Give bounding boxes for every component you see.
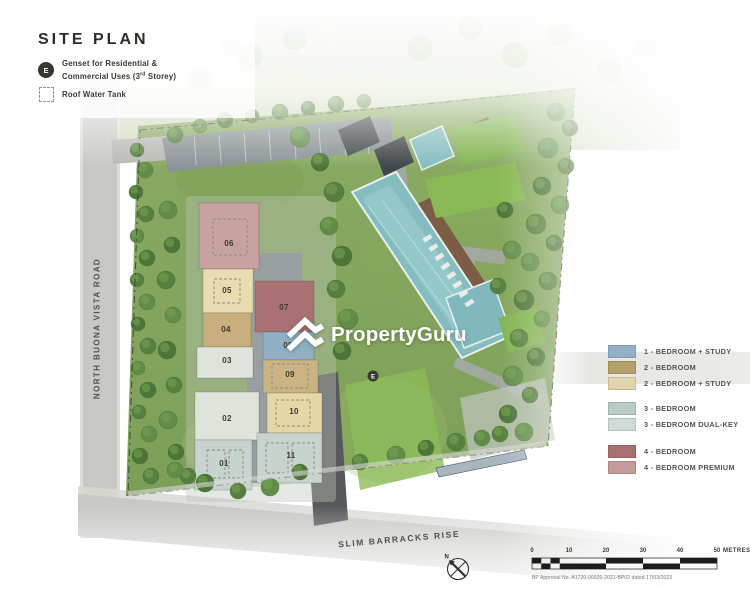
tree-highlight xyxy=(134,449,143,458)
genset-marker: E xyxy=(368,371,379,382)
north-arrow-compass: N xyxy=(441,551,473,583)
tree-highlight xyxy=(232,484,241,493)
genset-legend-symbol: E xyxy=(38,62,54,78)
swatch-3br xyxy=(608,402,636,415)
block-04-number: 04 xyxy=(221,325,231,334)
tree-highlight xyxy=(492,279,501,288)
page-title: SITE PLAN xyxy=(38,31,149,49)
tree-highlight xyxy=(132,362,140,370)
tree-highlight xyxy=(354,455,363,464)
scale-bar-graphic xyxy=(524,557,750,571)
legend-row: 2 - BEDROOM + STUDY xyxy=(608,378,748,389)
watermark-text: PropertyGuru xyxy=(331,323,467,347)
tree-highlight xyxy=(389,448,399,458)
scale-tick: 30 xyxy=(640,548,647,554)
tree-highlight xyxy=(141,295,150,304)
tree-highlight xyxy=(130,186,138,194)
tree-highlight xyxy=(263,480,273,490)
unit-type-legend: 1 - BEDROOM + STUDY 2 - BEDROOM 2 - BEDR… xyxy=(608,346,748,478)
swatch-3br-dualkey xyxy=(608,418,636,431)
tree-highlight xyxy=(142,339,151,348)
tree-highlight xyxy=(140,207,149,216)
scale-tick: 0 xyxy=(530,548,533,554)
tree-highlight xyxy=(322,219,332,229)
block-09-number: 09 xyxy=(285,370,295,379)
legend-row: 4 - BEDROOM PREMIUM xyxy=(608,462,748,473)
tree-highlight xyxy=(476,431,485,440)
block-11-number: 11 xyxy=(286,451,295,460)
scale-unit: METRES xyxy=(723,548,750,554)
block-06-number: 06 xyxy=(224,239,234,248)
scale-tick: 20 xyxy=(603,548,610,554)
block-03-number: 03 xyxy=(222,356,232,365)
block-06 xyxy=(199,203,259,269)
tree-highlight xyxy=(334,248,345,259)
swatch-2br-study xyxy=(608,377,636,390)
tree-highlight xyxy=(145,469,154,478)
block-02-number: 02 xyxy=(222,414,232,423)
scale-tick: 10 xyxy=(566,548,573,554)
legend-row: 3 - BEDROOM DUAL-KEY xyxy=(608,419,748,430)
tree-highlight xyxy=(329,282,339,292)
tree-highlight xyxy=(170,445,179,454)
swatch-4br-premium xyxy=(608,461,636,474)
swatch-2br xyxy=(608,361,636,374)
block-07-number: 07 xyxy=(279,303,289,312)
tree-highlight xyxy=(449,435,459,445)
tree-highlight xyxy=(133,406,141,414)
tree-highlight xyxy=(420,441,429,450)
svg-text:E: E xyxy=(371,375,375,381)
svg-text:N: N xyxy=(445,555,449,561)
tree-highlight xyxy=(142,383,151,392)
legend-row: 4 - BEDROOM xyxy=(608,446,748,457)
tree-highlight xyxy=(131,230,139,238)
swatch-1br-study xyxy=(608,345,636,358)
tree-highlight xyxy=(166,238,175,247)
legend-row: 3 - BEDROOM xyxy=(608,403,748,414)
approval-note: BP Approval No. A1720-00020-2021-BP02 da… xyxy=(532,575,672,581)
tree-highlight xyxy=(141,251,150,260)
genset-line1: Genset for Residential & xyxy=(62,59,157,68)
swatch-4br xyxy=(608,445,636,458)
tree-highlight xyxy=(169,463,178,472)
tree-highlight xyxy=(326,184,337,195)
watermark: PropertyGuru xyxy=(286,314,467,356)
genset-legend-label: Genset for Residential & Commercial Uses… xyxy=(62,59,176,83)
roof-water-tank-symbol xyxy=(39,87,54,102)
scale-tick: 50 xyxy=(714,548,721,554)
tree-highlight xyxy=(143,427,152,436)
tree-highlight xyxy=(167,308,176,317)
scale-tick: 40 xyxy=(677,548,684,554)
tree-highlight xyxy=(161,413,171,423)
tree-highlight xyxy=(159,273,169,283)
legend-row: 2 - BEDROOM xyxy=(608,362,748,373)
block-01-number: 01 xyxy=(219,459,229,468)
block-10-number: 10 xyxy=(289,407,299,416)
scale-bar: 0 10 20 30 40 50 METRES BP Approval No. … xyxy=(524,548,750,594)
block-05-number: 05 xyxy=(222,286,232,295)
tree-highlight xyxy=(160,343,170,353)
road-label-north-buona-vista: NORTH BUONA VISTA ROAD xyxy=(93,249,102,409)
roof-water-tank-label: Roof Water Tank xyxy=(62,90,126,99)
tree-highlight xyxy=(161,203,171,213)
legend-row: 1 - BEDROOM + STUDY xyxy=(608,346,748,357)
propertyguru-logo-icon xyxy=(286,314,324,356)
genset-line2: Commercial Uses (3rd Storey) xyxy=(62,72,176,81)
tree-highlight xyxy=(168,378,177,387)
